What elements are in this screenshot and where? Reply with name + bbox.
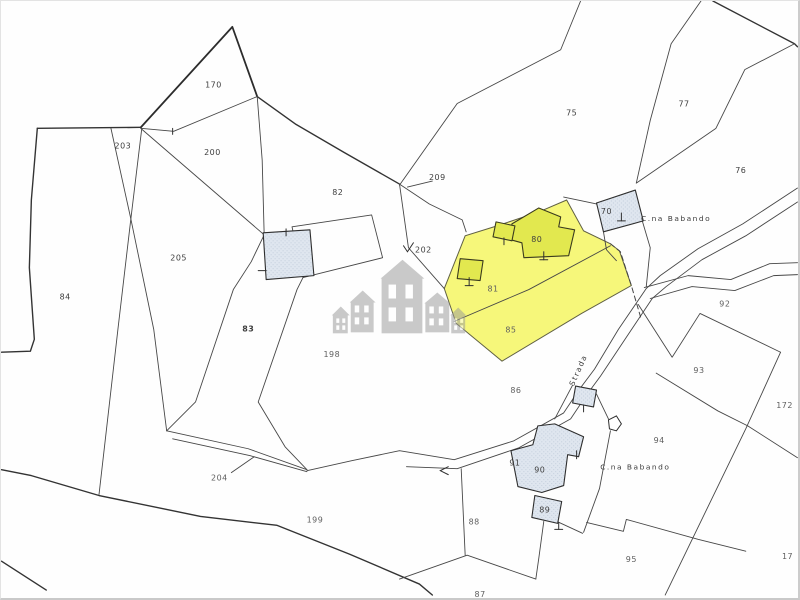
parcel-label-202: 202 <box>415 246 432 255</box>
parcel-label-86: 86 <box>510 386 521 395</box>
watermark-house-icon <box>381 260 425 334</box>
parcel-label-17: 17 <box>782 552 793 561</box>
place-label-strada: Strada <box>567 353 589 387</box>
parcel-label-76: 76 <box>735 166 746 175</box>
place-label-c.na-babando: C.na Babando <box>600 463 670 472</box>
parcel-label-85: 85 <box>505 325 516 334</box>
parcel-label-83: 83 <box>242 324 254 333</box>
parcel-label-204: 204 <box>211 474 228 483</box>
parcel-label-88: 88 <box>469 517 480 526</box>
parcel-label-81: 81 <box>487 285 498 294</box>
watermark-buildings-logo <box>332 260 466 334</box>
parcel-label-172: 172 <box>776 401 793 410</box>
building-parcel-205 <box>263 230 314 280</box>
parcel-label-198: 198 <box>323 350 340 359</box>
parcel-label-92: 92 <box>719 299 730 308</box>
parcel-label-93: 93 <box>693 366 704 375</box>
parcel-label-75: 75 <box>566 108 577 117</box>
parcel-label-205: 205 <box>170 254 187 263</box>
parcel-label-94: 94 <box>654 436 665 445</box>
cadastral-map-page: 1702032008220975777620584831982027080818… <box>0 0 800 600</box>
watermark-house-icon <box>332 306 350 333</box>
building-90 <box>511 424 584 493</box>
parcel-label-209: 209 <box>429 173 446 182</box>
cadastral-map: 1702032008220975777620584831982027080818… <box>1 1 798 598</box>
parcel-label-77: 77 <box>679 99 690 108</box>
building-81-small <box>457 259 483 281</box>
parcel-label-199: 199 <box>307 515 324 524</box>
watermark-house-icon <box>350 291 376 333</box>
place-label-c.na-babando: C.na Babando <box>641 214 711 223</box>
parcel-label-84: 84 <box>60 293 71 302</box>
parcel-label-203: 203 <box>115 141 132 150</box>
small-annex <box>608 416 621 431</box>
parcel-label-89: 89 <box>539 505 550 514</box>
parcel-label-91: 91 <box>509 459 520 468</box>
parcel-label-80: 80 <box>531 235 542 244</box>
parcel-label-95: 95 <box>626 555 637 564</box>
parcel-label-200: 200 <box>204 148 221 157</box>
parcel-label-82: 82 <box>332 188 343 197</box>
watermark-house-icon <box>424 293 450 333</box>
building-near-road <box>573 386 597 407</box>
parcel-label-87: 87 <box>475 590 486 598</box>
parcel-label-90: 90 <box>534 466 545 475</box>
parcel-label-70: 70 <box>601 207 612 216</box>
parcel-label-170: 170 <box>205 81 222 90</box>
